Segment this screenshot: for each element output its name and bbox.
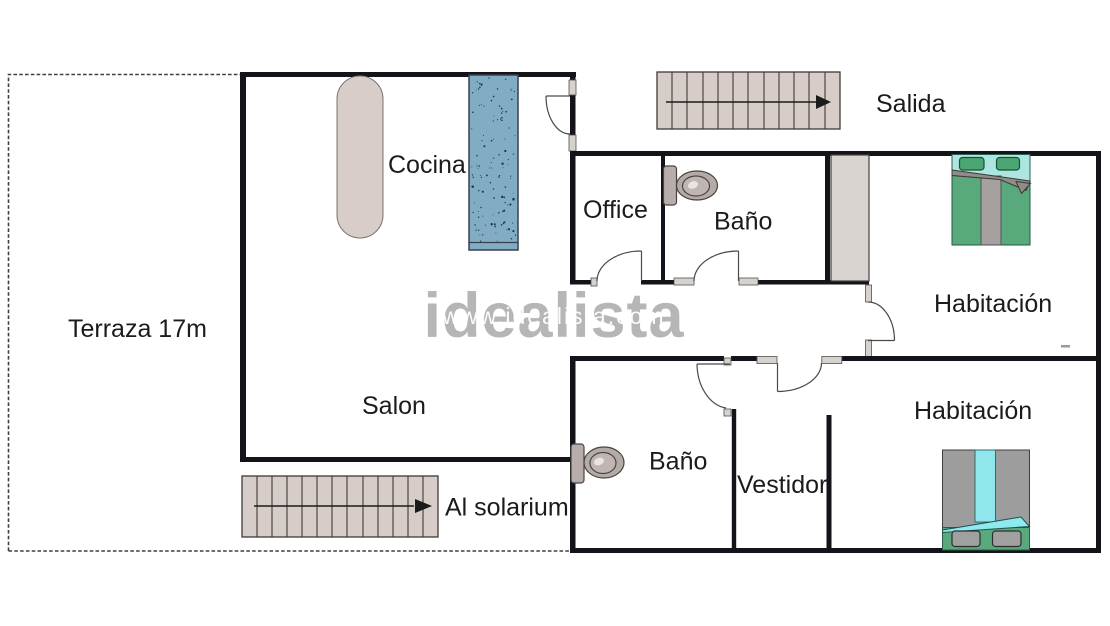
svg-text:Salida: Salida	[876, 90, 946, 118]
svg-text:Habitación: Habitación	[934, 290, 1052, 318]
svg-text:Vestidor: Vestidor	[737, 471, 827, 499]
svg-text:Al solarium: Al solarium	[445, 494, 569, 522]
svg-text:Office: Office	[583, 196, 648, 224]
svg-text:www.idealista.com: www.idealista.com	[441, 303, 665, 329]
svg-text:Cocina: Cocina	[388, 151, 466, 179]
svg-text:Terraza 17m: Terraza 17m	[68, 315, 207, 343]
svg-text:Baño: Baño	[649, 448, 707, 476]
svg-text:Habitación: Habitación	[914, 397, 1032, 425]
svg-text:Baño: Baño	[714, 208, 772, 236]
svg-text:Salon: Salon	[362, 392, 426, 420]
